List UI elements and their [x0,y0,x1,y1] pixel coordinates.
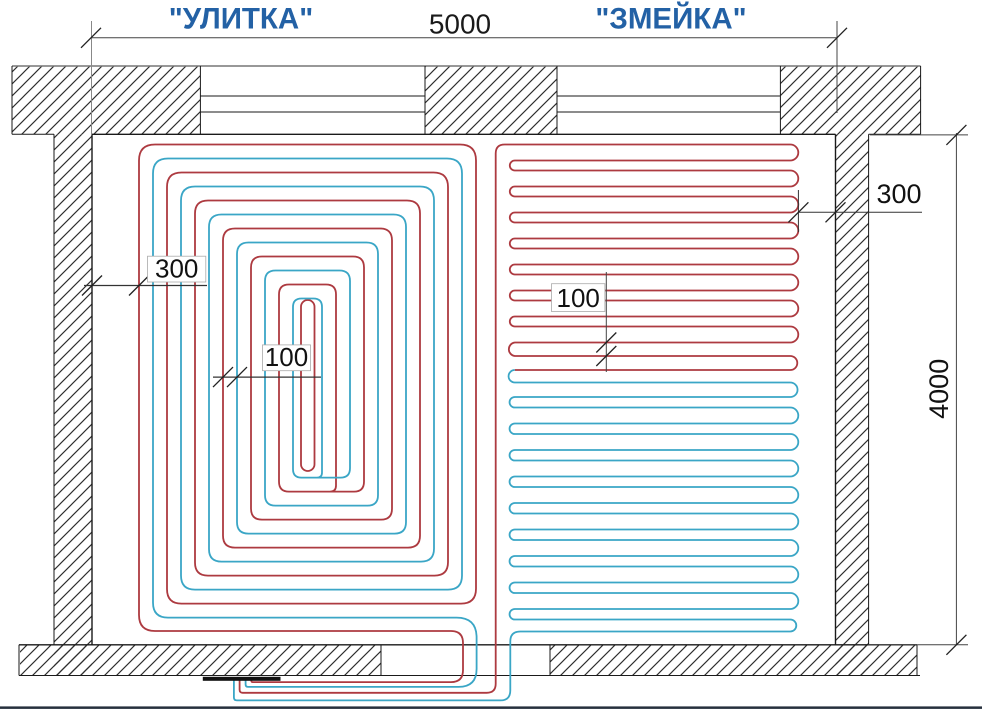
svg-text:4000: 4000 [924,359,954,419]
svg-text:"УЛИТКА": "УЛИТКА" [169,3,313,36]
svg-text:"ЗМЕЙКА": "ЗМЕЙКА" [595,2,746,36]
svg-text:5000: 5000 [429,9,491,40]
svg-text:100: 100 [265,342,308,372]
svg-text:300: 300 [876,179,921,209]
svg-text:300: 300 [155,254,198,284]
svg-text:100: 100 [557,283,600,313]
